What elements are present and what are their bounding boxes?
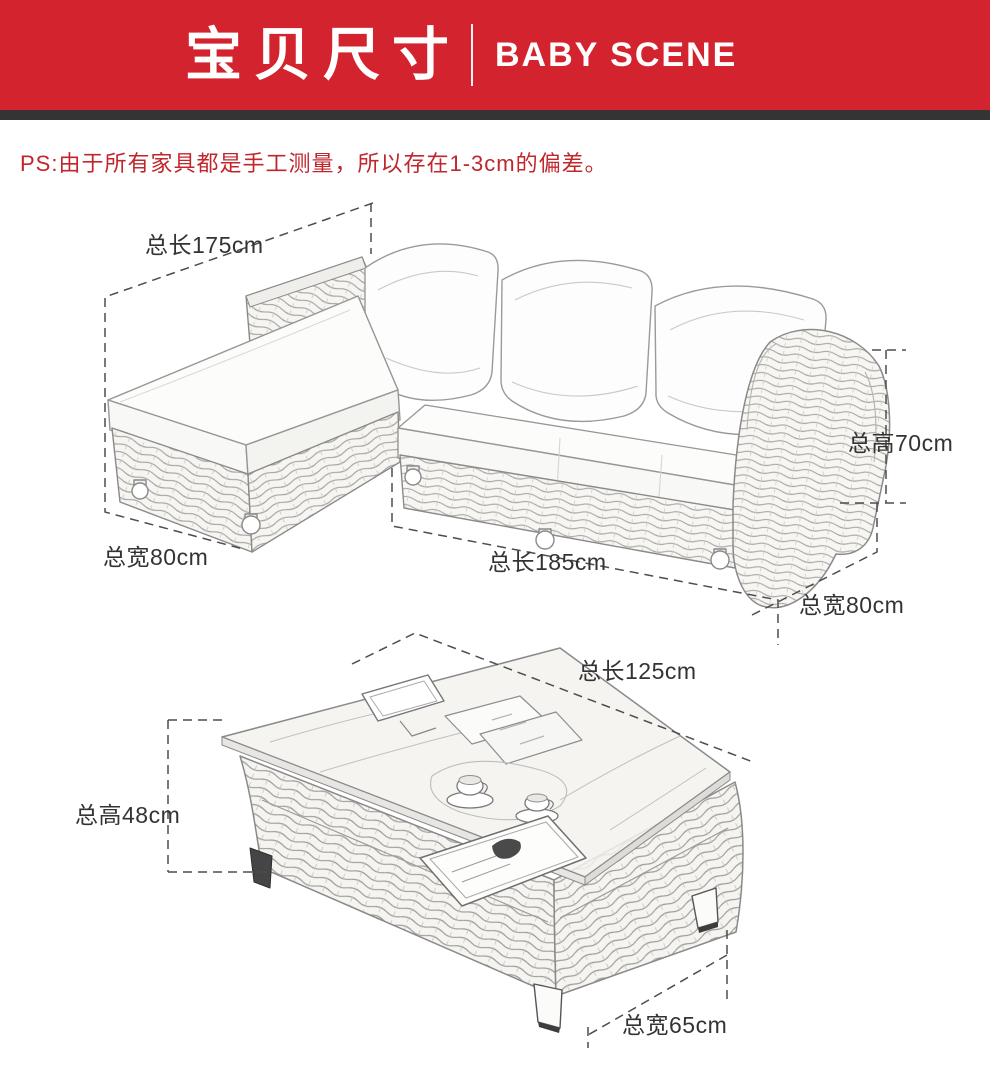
label-table-height: 总高48cm [75, 796, 180, 830]
sofa-sketch [105, 203, 906, 645]
label-chaise-length: 总长175cm [145, 226, 264, 260]
label-sofa-height: 总高70cm [848, 424, 953, 458]
label-table-width: 总宽65cm [622, 1006, 727, 1040]
label-chaise-width: 总宽80cm [103, 538, 208, 572]
label-sofa-length: 总长185cm [488, 543, 607, 577]
furniture-dimension-sketch [0, 0, 990, 1065]
label-table-length: 总长125cm [578, 652, 697, 686]
label-sofa-depth: 总宽80cm [799, 586, 904, 620]
coffee-table-sketch [168, 633, 753, 1048]
